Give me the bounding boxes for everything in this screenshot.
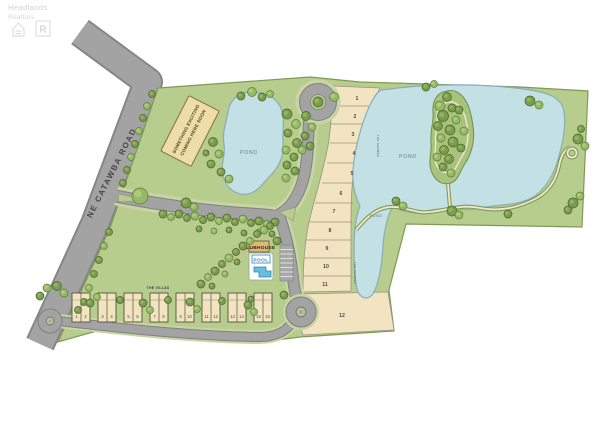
tree-icon (504, 210, 512, 218)
tree-icon (438, 111, 449, 122)
tree-icon (302, 112, 311, 121)
villa-unit-number-11: 11 (204, 314, 209, 319)
tree-icon (175, 210, 183, 218)
lot-number-5: 5 (351, 171, 354, 177)
tree-icon (144, 103, 151, 110)
tree-icon (292, 120, 301, 129)
cul-de-sac-west (42, 313, 58, 329)
villa-unit-number-13: 13 (230, 314, 235, 319)
tree-icon (184, 215, 191, 222)
tree-icon (128, 154, 135, 161)
tree-icon (86, 299, 94, 307)
lot-number-6: 6 (340, 191, 343, 197)
tree-icon (165, 297, 172, 304)
tree-icon (248, 296, 254, 302)
tree-icon (237, 92, 245, 100)
tree-icon (241, 230, 247, 236)
tree-icon (168, 214, 175, 221)
tree-icon (435, 101, 445, 111)
tree-icon (233, 249, 240, 256)
lot-number-7: 7 (333, 209, 336, 215)
tree-icon (445, 125, 455, 135)
watermark-line1: Headlands (8, 3, 47, 12)
lot-number-4: 4 (353, 151, 356, 157)
tree-icon (75, 307, 82, 314)
tree-icon (207, 160, 215, 168)
tree-icon (219, 298, 226, 305)
tree-icon (191, 212, 199, 220)
lot-number-3: 3 (352, 132, 355, 138)
tree-icon (392, 197, 400, 205)
tree-icon (124, 167, 131, 174)
tree-icon (186, 298, 194, 306)
lot-number-11: 11 (322, 282, 328, 288)
tree-icon (290, 153, 298, 161)
parking-lot (280, 245, 293, 281)
villa-building-9-10: 910 (176, 293, 194, 322)
pool-label: POOL (253, 258, 268, 264)
tree-icon (200, 217, 207, 224)
tree-icon (564, 206, 572, 214)
tree-icon (448, 137, 458, 147)
shores-street-label-lower: THE SHORES (353, 262, 357, 285)
villa-building-15-16: 1516 (254, 293, 272, 322)
tree-icon (217, 168, 225, 176)
tree-icon (269, 231, 275, 237)
tree-icon (433, 153, 441, 161)
tree-icon (120, 180, 127, 187)
tree-icon (43, 284, 51, 292)
tree-icon (267, 91, 274, 98)
tree-icon (267, 223, 274, 230)
tree-icon (431, 81, 438, 88)
pond-finger-label: POND (370, 214, 383, 218)
tree-icon (96, 257, 103, 264)
lot-number-1: 1 (356, 96, 359, 102)
tree-icon (209, 138, 218, 147)
tree-icon (284, 129, 292, 137)
tree-icon (196, 226, 202, 232)
lot-number-9: 9 (326, 246, 329, 252)
tree-icon (215, 150, 223, 158)
tree-icon (576, 192, 584, 200)
tree-icon (209, 283, 215, 289)
tree-icon (225, 254, 233, 262)
villa-building-1-2: 12 (72, 293, 90, 322)
tree-icon (248, 220, 255, 227)
tree-icon (455, 106, 463, 114)
lot-number-12: 12 (339, 313, 345, 319)
villa-unit-number-10: 10 (187, 314, 192, 319)
tree-icon (86, 285, 93, 292)
tree-icon (117, 297, 124, 304)
pond-left-label: POND (240, 150, 258, 156)
island-bridge-path (448, 184, 450, 208)
tree-icon (248, 88, 257, 97)
tree-icon (132, 188, 148, 204)
tree-icon (211, 267, 219, 275)
villa-unit-number-15: 15 (256, 314, 261, 319)
tree-icon (216, 218, 223, 225)
tree-icon (225, 175, 233, 183)
tree-icon (258, 93, 266, 101)
tree-icon (197, 280, 205, 288)
tree-icon (457, 144, 465, 152)
lot-number-8: 8 (329, 228, 332, 234)
watermark-line2: Realtors (8, 14, 35, 21)
tree-icon (239, 215, 247, 223)
tree-icon (101, 243, 108, 250)
tree-icon (440, 146, 449, 155)
tree-icon (460, 127, 468, 135)
tree-icon (255, 217, 263, 225)
tree-icon (282, 109, 292, 119)
tree-icon (282, 174, 290, 182)
equal-housing-icon (13, 23, 24, 36)
site-plan-page: Headlands Realtors R (0, 0, 600, 424)
tree-icon (535, 101, 543, 109)
tree-icon (443, 93, 452, 102)
tree-icon (223, 214, 231, 222)
pond-main-label: POND (399, 154, 417, 160)
tree-icon (60, 289, 68, 297)
villa-building-5-6: 56 (124, 293, 142, 322)
tree-icon (53, 282, 62, 291)
tree-icon (434, 122, 443, 131)
svg-text:R: R (39, 25, 47, 36)
tree-icon (181, 198, 191, 208)
tree-icon (573, 134, 583, 144)
tree-icon (147, 307, 154, 314)
tree-icon (94, 294, 101, 301)
tree-icon (301, 132, 309, 140)
tree-icon (159, 210, 167, 218)
lot-number-10: 10 (323, 264, 329, 270)
tree-icon (106, 229, 113, 236)
tree-icon (140, 115, 147, 122)
tree-icon (581, 142, 589, 150)
watermark: Headlands Realtors R (8, 3, 50, 36)
tree-icon (219, 261, 226, 268)
tree-icon (194, 306, 201, 313)
tree-icon (399, 202, 407, 210)
tree-icon (298, 146, 306, 154)
tree-icon (439, 163, 447, 171)
tree-icon (313, 97, 323, 107)
pool-area: POOL (249, 253, 273, 280)
villa-building-11-12: 1112 (202, 293, 220, 322)
tree-icon (251, 309, 258, 316)
tree-icon (280, 291, 288, 299)
realtor-icon: R (36, 21, 50, 36)
tree-icon (578, 126, 585, 133)
tree-icon (205, 274, 212, 281)
tree-icon (139, 299, 147, 307)
tree-icon (452, 116, 460, 124)
tree-icon (455, 211, 463, 219)
tree-icon (91, 271, 98, 278)
cul-de-sac-east (291, 302, 311, 322)
tree-icon (283, 161, 291, 169)
shores-street-label-upper: THE SHORES (376, 135, 380, 158)
tree-icon (36, 292, 44, 300)
tree-icon (226, 227, 232, 233)
tree-icon (211, 228, 217, 234)
site-plan-svg: Headlands Realtors R (0, 0, 600, 424)
tree-icon (525, 96, 535, 106)
lot-number-2: 2 (354, 114, 357, 120)
tree-icon (282, 146, 290, 154)
tree-icon (330, 93, 339, 102)
villa-unit-number-16: 16 (265, 314, 270, 319)
tree-icon (254, 231, 261, 238)
tree-icon (445, 155, 454, 164)
tree-icon (273, 237, 281, 245)
villas-section-label: THE VILLAS (147, 286, 170, 290)
villa-building-13-14: 1314 (228, 293, 246, 322)
tree-icon (149, 91, 156, 98)
villa-unit-number-14: 14 (239, 314, 244, 319)
villa-unit-number-12: 12 (213, 314, 218, 319)
tree-icon (291, 167, 299, 175)
tree-icon (422, 83, 430, 91)
tree-icon (222, 271, 228, 277)
tree-icon (234, 259, 240, 265)
tree-icon (447, 169, 455, 177)
tree-icon (207, 213, 215, 221)
clubhouse-label: CLUBHOUSE (242, 245, 276, 251)
tree-icon (239, 242, 247, 250)
tree-icon (203, 150, 209, 156)
tree-icon (306, 142, 314, 150)
tree-icon (437, 134, 445, 142)
tree-icon (247, 238, 254, 245)
tree-icon (308, 123, 316, 131)
tree-icon (232, 219, 239, 226)
tree-icon (190, 203, 198, 211)
